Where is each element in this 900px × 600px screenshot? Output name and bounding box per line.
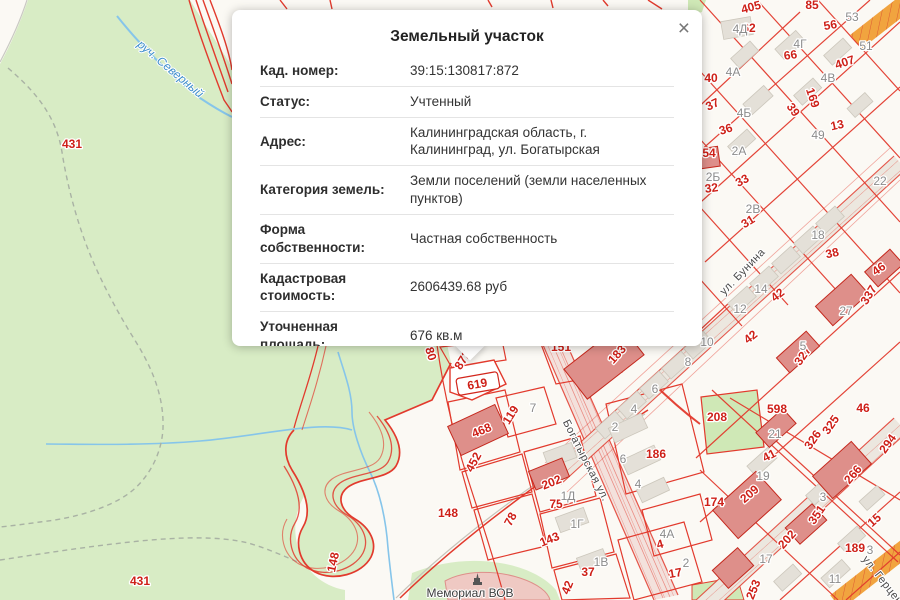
map-label: 85 — [805, 0, 819, 12]
map-label: 46 — [856, 401, 870, 415]
map-label: 4В — [821, 71, 836, 85]
map-label: 3 — [820, 490, 827, 504]
map-label: 54 — [702, 146, 716, 160]
field-value: 676 кв.м — [408, 312, 674, 346]
field-label: Форма собственности: — [260, 214, 408, 263]
field-label: Категория земель: — [260, 166, 408, 215]
map-label: 4 — [635, 477, 642, 491]
map-label: 6 — [620, 452, 627, 466]
map-label: 7 — [530, 401, 537, 415]
map-label: 4Б — [737, 106, 752, 120]
map-label: 53 — [845, 10, 859, 24]
map-label: 431 — [62, 137, 82, 151]
map-label: 189 — [845, 541, 865, 555]
table-row: Кадастровая стоимость:2606439.68 руб — [260, 263, 674, 312]
map-label: 1В — [594, 555, 609, 569]
field-label: Кад. номер: — [260, 56, 408, 86]
table-row: Форма собственности:Частная собственност… — [260, 214, 674, 263]
map-label: 18 — [811, 228, 825, 242]
map-label: 40 — [704, 71, 718, 85]
field-value: 39:15:130817:872 — [408, 56, 674, 86]
table-row: Статус:Учтенный — [260, 86, 674, 117]
map-application: 431431руч. Северный405856256664074037391… — [0, 0, 900, 600]
map-label: 8 — [685, 355, 692, 369]
map-label: 4 — [631, 402, 638, 416]
map-label: 2В — [746, 202, 761, 216]
parcel-info-popup: × Земельный участок Кад. номер:39:15:130… — [232, 10, 702, 346]
map-label: 174 — [704, 495, 724, 509]
field-label: Кадастровая стоимость: — [260, 263, 408, 312]
map-label: 4А — [726, 65, 741, 79]
field-label: Адрес: — [260, 117, 408, 166]
field-value: Учтенный — [408, 86, 674, 117]
map-label: 12 — [733, 302, 747, 316]
table-row: Уточненная площадь:676 кв.м — [260, 312, 674, 346]
field-value: 2606439.68 руб — [408, 263, 674, 312]
map-label: 49 — [811, 128, 825, 142]
map-label: 17 — [759, 552, 773, 566]
map-label: 21 — [768, 427, 782, 441]
map-label: 4Г — [793, 37, 807, 51]
parcel-attributes-table: Кад. номер:39:15:130817:872Статус:Учтенн… — [260, 56, 674, 346]
map-label: 4Д — [733, 22, 748, 36]
map-label: 2А — [732, 144, 747, 158]
map-label: 2 — [683, 556, 690, 570]
map-label: 14 — [754, 282, 768, 296]
map-label: 1Г — [570, 517, 584, 531]
map-label: 51 — [859, 39, 873, 53]
map-label: 186 — [646, 447, 666, 461]
map-label: 1Д — [561, 489, 576, 503]
map-label: 598 — [767, 402, 787, 416]
map-label: 5 — [800, 339, 807, 353]
map-label: 2Б — [706, 170, 721, 184]
map-label: 431 — [130, 574, 150, 588]
map-label: 56 — [823, 17, 839, 33]
map-label: 17 — [668, 565, 684, 581]
table-row: Адрес:Калининградская область, г. Калини… — [260, 117, 674, 166]
table-row: Кад. номер:39:15:130817:872 — [260, 56, 674, 86]
map-label: 148 — [438, 506, 458, 520]
field-label: Статус: — [260, 86, 408, 117]
map-label: 11 — [829, 572, 842, 586]
map-label: 2 — [612, 420, 619, 434]
map-label: 19 — [756, 469, 770, 483]
map-label: 22 — [873, 174, 887, 188]
map-label: 27 — [839, 304, 853, 318]
field-value: Калининградская область, г. Калининград,… — [408, 117, 674, 166]
popup-title: Земельный участок — [260, 22, 674, 56]
field-value: Частная собственность — [408, 214, 674, 263]
close-icon[interactable]: × — [678, 18, 690, 39]
map-label: Мемориал ВОВ — [426, 586, 513, 600]
map-label: 10 — [700, 335, 714, 349]
map-label: 208 — [707, 410, 727, 424]
field-value: Земли поселений (земли населенных пункто… — [408, 166, 674, 215]
map-label: 4А — [660, 527, 675, 541]
table-row: Категория земель:Земли поселений (земли … — [260, 166, 674, 215]
map-label: 6 — [652, 382, 659, 396]
field-label: Уточненная площадь: — [260, 312, 408, 346]
